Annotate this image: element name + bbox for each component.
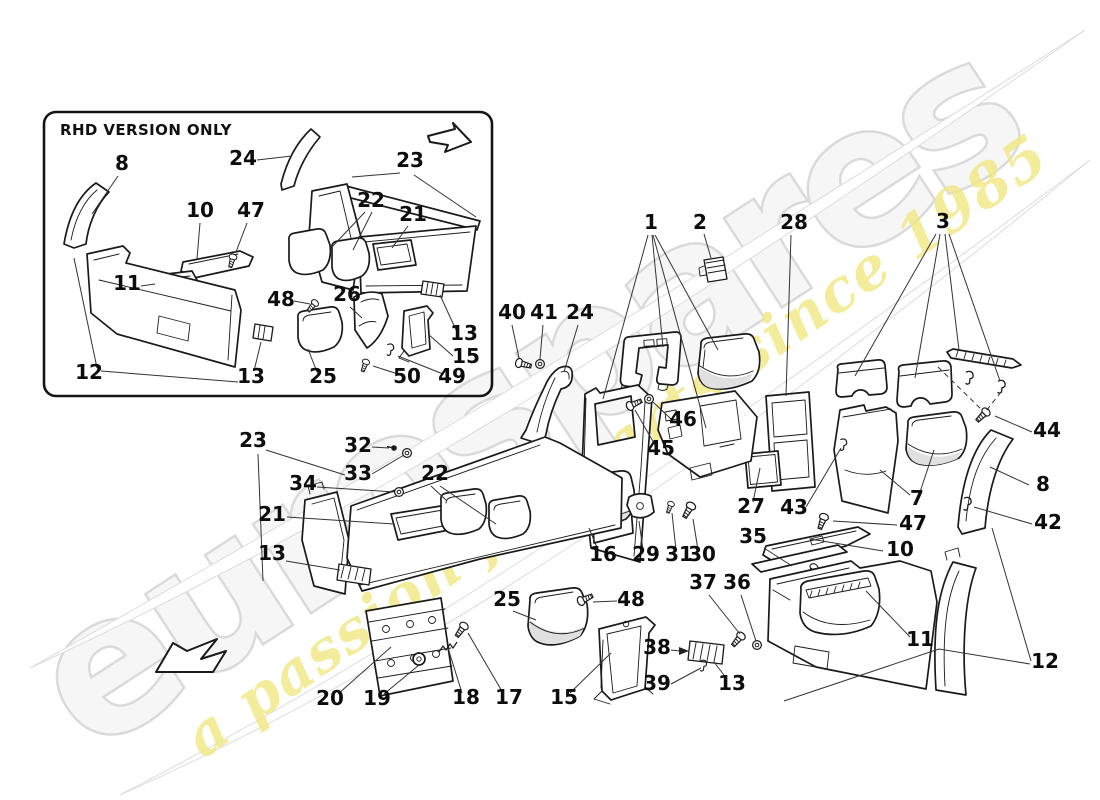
part-17-screw: [453, 621, 470, 639]
part-7-quarter-trim: [834, 405, 898, 513]
part-37-screw: [729, 630, 746, 648]
leader-line-8: [990, 467, 1029, 485]
part-29-plate: [627, 494, 654, 518]
part-callout-2: 2: [693, 210, 707, 234]
part-callout-13: 13: [450, 321, 478, 345]
part-callout-19: 19: [363, 686, 391, 710]
leader-line-10: [197, 223, 200, 259]
part-callout-10: 10: [186, 198, 214, 222]
leader-line-12: [992, 528, 1031, 661]
inset-title: RHD VERSION ONLY: [60, 121, 233, 139]
part-callout-37: 37: [689, 570, 717, 594]
part-callout-43: 43: [780, 495, 808, 519]
part-31-screw: [665, 500, 676, 514]
leader-line-17: [468, 633, 503, 693]
part-34-grommet: [395, 488, 404, 497]
leader-line-23: [352, 173, 400, 177]
part-callout-48: 48: [267, 287, 295, 311]
part-callout-42: 42: [1034, 510, 1062, 534]
part-callout-35: 35: [739, 524, 767, 548]
part-callout-33: 33: [344, 461, 372, 485]
part-callout-25: 25: [493, 587, 521, 611]
part-callout-21: 21: [399, 202, 427, 226]
part-callout-8: 8: [115, 151, 129, 175]
part-callout-47: 47: [237, 198, 265, 222]
part-callout-1: 1: [644, 210, 658, 234]
part-callout-29: 29: [632, 542, 660, 566]
part-callout-13: 13: [258, 541, 286, 565]
part-1-cup-trim: [698, 334, 760, 389]
leader-line-39: [671, 668, 701, 684]
part-callout-21: 21: [258, 502, 286, 526]
part-3-rail: [947, 349, 1021, 368]
part-callout-32: 32: [344, 433, 372, 457]
leader-arrowhead-38: [679, 647, 689, 655]
parts-diagram-page: eurospares a passion for parts since 198…: [0, 0, 1100, 800]
part-callout-10: 10: [886, 537, 914, 561]
part-3-clip-b: [998, 380, 1005, 393]
part-callout-39: 39: [643, 671, 671, 695]
part-callout-36: 36: [723, 570, 751, 594]
part-callout-23: 23: [396, 148, 424, 172]
part-callout-45: 45: [647, 436, 675, 460]
leader-line-38: [671, 650, 680, 651]
part-callout-12: 12: [75, 360, 103, 384]
part-callout-25: 25: [309, 364, 337, 388]
part-callout-27: 27: [737, 494, 765, 518]
inset-part-13-badge-left: [253, 324, 273, 341]
part-callout-24: 24: [229, 146, 257, 170]
part-3-cap-right: [897, 361, 952, 407]
part-20-bracket-plate: [366, 598, 457, 696]
part-callout-38: 38: [643, 635, 671, 659]
part-callout-40: 40: [498, 300, 526, 324]
part-callout-16: 16: [589, 542, 617, 566]
dashed-leader-line: [986, 392, 1001, 411]
direction-arrow-right-icon: [428, 123, 471, 152]
part-callout-13: 13: [237, 364, 265, 388]
part-36-grommet: [753, 641, 762, 650]
part-callout-34: 34: [289, 471, 317, 495]
inset-part-25-cup: [298, 307, 342, 352]
part-41-grommet: [536, 360, 545, 369]
part-callout-3: 3: [936, 209, 950, 233]
part-callout-18: 18: [452, 685, 480, 709]
part-callout-7: 7: [910, 486, 924, 510]
part-callout-22: 22: [357, 188, 385, 212]
part-callout-30: 30: [688, 542, 716, 566]
part-callout-26: 26: [333, 282, 361, 306]
part-callout-28: 28: [780, 210, 808, 234]
leader-line-48: [294, 301, 310, 304]
part-30-screw: [680, 500, 697, 519]
part-callout-50: 50: [393, 364, 421, 388]
part-47-screw: [815, 512, 829, 530]
parts-diagram-canvas: eurospares a passion for parts since 198…: [0, 0, 1100, 800]
leader-line-47: [236, 223, 247, 252]
part-13-badge: [688, 641, 724, 664]
inset-part-8-a-pillar-trim: [64, 183, 109, 248]
part-callout-44: 44: [1033, 418, 1061, 442]
part-callout-8: 8: [1036, 472, 1050, 496]
leader-line-12: [101, 371, 238, 382]
part-callout-15: 15: [550, 685, 578, 709]
part-callout-24: 24: [566, 300, 594, 324]
part-callout-11: 11: [906, 627, 934, 651]
part-callout-11: 11: [113, 271, 141, 295]
part-callout-15: 15: [452, 344, 480, 368]
part-callout-17: 17: [495, 685, 523, 709]
part-callout-48: 48: [617, 587, 645, 611]
part-callout-23: 23: [239, 428, 267, 452]
part-46-grommet: [645, 395, 654, 404]
part-callout-41: 41: [530, 300, 558, 324]
leader-line-44: [995, 416, 1032, 432]
leader-line-37: [709, 595, 740, 634]
part-callout-46: 46: [669, 407, 697, 431]
part-44-screw: [974, 406, 992, 424]
part-7-cup: [906, 412, 967, 465]
part-33-grommet: [403, 449, 412, 458]
part-callout-47: 47: [899, 511, 927, 535]
inset-part-24-a-pillar-trim: [281, 129, 320, 190]
part-12-sill-assembly: [768, 548, 976, 695]
part-callout-12: 12: [1031, 649, 1059, 673]
part-12-b-pillar-lower: [935, 562, 976, 695]
leader-line-24: [257, 156, 292, 160]
part-callout-22: 22: [421, 461, 449, 485]
leader-line-48: [593, 601, 617, 602]
part-19-knob: [413, 653, 425, 665]
part-3-clip-a: [966, 371, 973, 384]
part-callout-20: 20: [316, 686, 344, 710]
leader-line-47: [833, 521, 897, 525]
part-callout-13: 13: [718, 671, 746, 695]
